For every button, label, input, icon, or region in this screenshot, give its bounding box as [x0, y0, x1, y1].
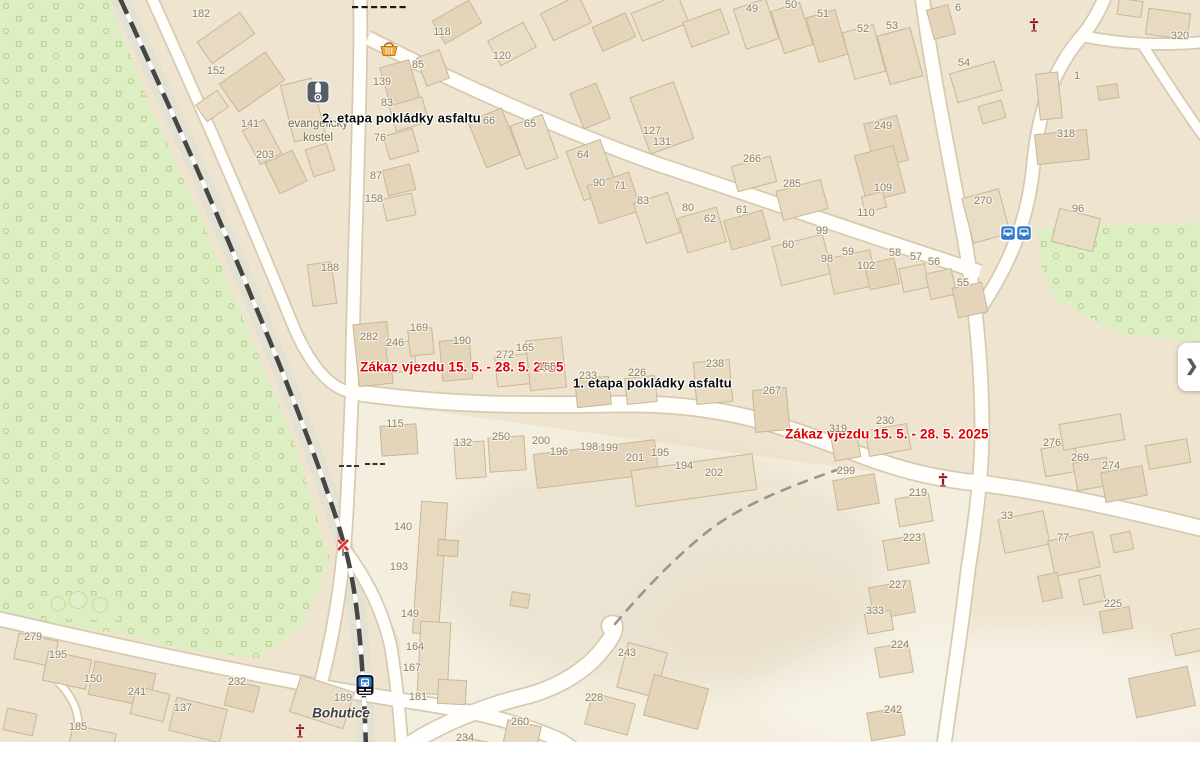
- dash-mark: [373, 463, 378, 465]
- map-viewport[interactable]: evangelický kostel Bohutice 2. etapa pok…: [0, 0, 1200, 742]
- chevron-right-icon: ❯: [1178, 343, 1200, 391]
- building: [525, 337, 566, 390]
- bus-icon[interactable]: [1001, 226, 1016, 241]
- building: [1110, 531, 1133, 553]
- building: [1035, 129, 1090, 164]
- building: [1097, 84, 1119, 101]
- building: [439, 339, 472, 381]
- building: [575, 376, 612, 407]
- map-canvas[interactable]: [0, 0, 1200, 742]
- building: [454, 441, 486, 479]
- dash-mark: [339, 465, 344, 467]
- tree: [70, 592, 87, 609]
- building: [437, 539, 458, 556]
- building: [867, 707, 905, 740]
- building: [408, 328, 435, 356]
- station-icon[interactable]: [356, 675, 374, 696]
- building: [1079, 575, 1106, 605]
- dash-mark: [400, 6, 406, 8]
- building: [488, 436, 526, 472]
- tree: [93, 598, 108, 613]
- building: [865, 258, 900, 290]
- building: [693, 360, 733, 405]
- building: [380, 424, 418, 456]
- building: [510, 592, 530, 609]
- building: [899, 264, 929, 293]
- building: [1145, 8, 1190, 40]
- building: [895, 493, 933, 526]
- building: [864, 610, 893, 634]
- hillshade: [640, 565, 880, 685]
- building: [1117, 0, 1143, 18]
- building: [625, 376, 658, 405]
- building: [307, 262, 337, 307]
- dash-mark: [362, 6, 368, 8]
- page-bottom-whitespace: [0, 742, 1200, 783]
- building: [437, 679, 466, 704]
- dash-mark: [380, 463, 385, 465]
- building: [926, 269, 957, 300]
- dash-mark: [354, 465, 359, 467]
- map-app: evangelický kostel Bohutice 2. etapa pok…: [0, 0, 1200, 783]
- building: [1099, 607, 1132, 634]
- building: [952, 282, 988, 318]
- dash-mark: [347, 465, 352, 467]
- dash-mark: [365, 463, 370, 465]
- dash-mark: [352, 6, 358, 8]
- tree: [51, 597, 65, 611]
- church-icon[interactable]: [307, 81, 329, 103]
- building: [831, 435, 860, 461]
- building: [875, 642, 914, 677]
- dash-mark: [371, 6, 377, 8]
- dash-mark: [381, 6, 387, 8]
- panel-expander[interactable]: ❯: [1178, 343, 1200, 391]
- bus-icon[interactable]: [1017, 226, 1032, 241]
- building: [1036, 72, 1063, 120]
- dash-mark: [390, 6, 396, 8]
- building: [752, 388, 790, 433]
